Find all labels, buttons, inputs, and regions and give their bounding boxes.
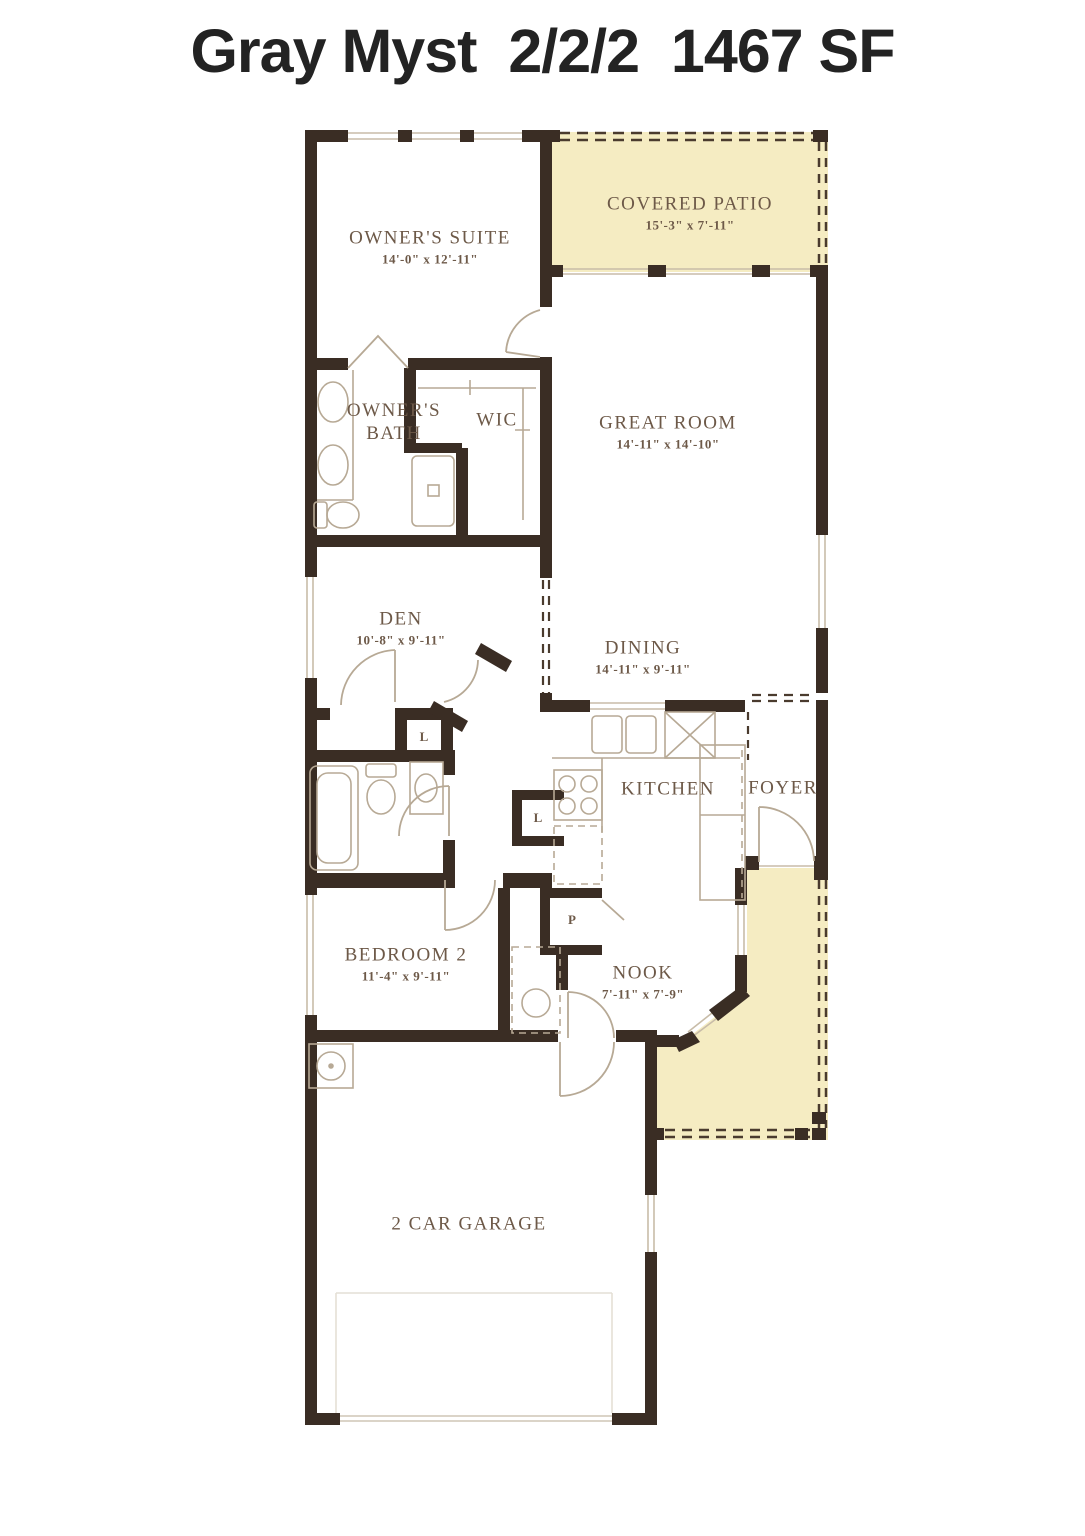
room-label-owners-bath: OWNER'S BATH bbox=[329, 399, 459, 445]
room-label-den: DEN 10'-8" x 9'-11" bbox=[276, 607, 526, 648]
room-name: GREAT ROOM bbox=[593, 411, 743, 434]
room-dims: 7'-11" x 7'-9" bbox=[518, 987, 768, 1003]
room-label-garage: 2 CAR GARAGE bbox=[344, 1212, 594, 1235]
room-label-foyer: FOYER bbox=[748, 776, 818, 799]
room-name: WIC bbox=[476, 408, 517, 431]
room-label-owners-suite: OWNER'S SUITE 14'-0" x 12'-11" bbox=[345, 226, 515, 267]
room-name: DEN bbox=[276, 607, 526, 630]
room-dims: 14'-11" x 9'-11" bbox=[518, 662, 768, 678]
room-label-great-room: GREAT ROOM 14'-11" x 14'-10" bbox=[593, 411, 743, 452]
room-name: COVERED PATIO bbox=[605, 192, 775, 215]
room-dims: 11'-4" x 9'-11" bbox=[281, 969, 531, 985]
room-name: DINING bbox=[518, 636, 768, 659]
room-name: FOYER bbox=[748, 776, 818, 799]
room-label-dining: DINING 14'-11" x 9'-11" bbox=[518, 636, 768, 677]
room-dims: 14'-11" x 14'-10" bbox=[593, 437, 743, 453]
linen-closet-label-2: L bbox=[534, 810, 543, 826]
room-name: OWNER'S BATH bbox=[329, 399, 459, 445]
room-label-wic: WIC bbox=[476, 408, 517, 431]
room-name: BEDROOM 2 bbox=[281, 943, 531, 966]
floor-plan: OWNER'S SUITE 14'-0" x 12'-11" COVERED P… bbox=[0, 0, 1085, 1536]
room-dims: 15'-3" x 7'-11" bbox=[605, 218, 775, 234]
room-label-bedroom-2: BEDROOM 2 11'-4" x 9'-11" bbox=[281, 943, 531, 984]
room-name: NOOK bbox=[518, 961, 768, 984]
floor-plan-page: Gray Myst 2/2/2 1467 SF bbox=[0, 0, 1085, 1536]
room-label-nook: NOOK 7'-11" x 7'-9" bbox=[518, 961, 768, 1002]
room-label-covered-patio: COVERED PATIO 15'-3" x 7'-11" bbox=[605, 192, 775, 233]
floor-plan-drawing bbox=[0, 0, 1085, 1536]
room-dims: 10'-8" x 9'-11" bbox=[276, 633, 526, 649]
room-name: OWNER'S SUITE bbox=[345, 226, 515, 249]
room-dims: 14'-0" x 12'-11" bbox=[345, 252, 515, 268]
linen-closet-label-1: L bbox=[420, 729, 429, 745]
pantry-label: P bbox=[568, 912, 576, 928]
room-name: 2 CAR GARAGE bbox=[344, 1212, 594, 1235]
